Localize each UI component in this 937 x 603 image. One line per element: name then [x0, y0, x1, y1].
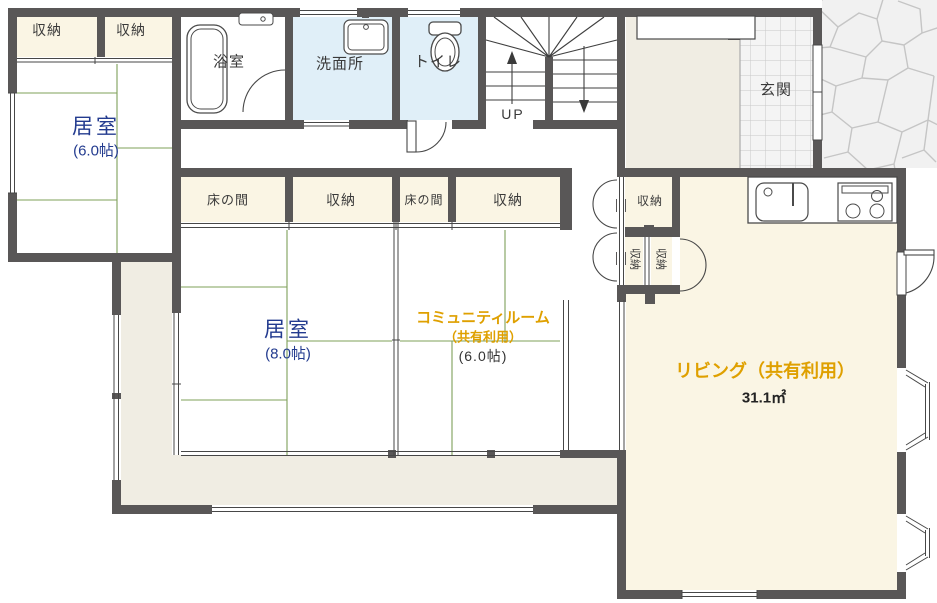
kitchen-counter-icon [748, 177, 897, 223]
label-storage-e: 収納 [637, 195, 663, 207]
label-storage-c: 収納 [326, 193, 356, 207]
label-room8-name: 居室 [264, 320, 312, 341]
bath-basin-icon [239, 13, 273, 25]
label-community-name: コミュニティルーム [416, 311, 550, 326]
label-living-name: リビング（共有利用） [675, 362, 855, 380]
stove-icon [838, 183, 892, 221]
label-tokonoma-a: 床の間 [207, 194, 249, 207]
label-storage-f: 収納 [629, 248, 640, 270]
floor-plan: 収納 収納 居室 (6.0帖) 浴室 洗面所 トイレ UP 玄関 床の間 収納 … [0, 0, 937, 603]
label-storage-d: 収納 [493, 193, 523, 207]
label-stairs-up: UP [501, 107, 524, 121]
label-room6-size: (6.0帖) [73, 144, 119, 159]
label-toilet: トイレ [414, 55, 462, 70]
label-room6-name: 居室 [72, 117, 120, 138]
kitchen-sink-icon [756, 183, 808, 221]
label-storage-g: 収納 [655, 248, 666, 270]
label-community-shared: （共有利用） [444, 331, 522, 344]
room-fills [17, 0, 937, 590]
label-tokonoma-b: 床の間 [404, 194, 443, 206]
washstand-icon [344, 20, 388, 54]
label-genkan: 玄関 [760, 83, 792, 98]
label-living-area: 31.1㎡ [742, 391, 786, 406]
shoe-cabinet-icon [637, 16, 755, 39]
label-storage-a: 収納 [32, 23, 62, 37]
label-washroom: 洗面所 [316, 57, 364, 72]
label-room8-size: (8.0帖) [265, 347, 311, 362]
floor-plan-drawing [0, 0, 937, 603]
label-storage-b: 収納 [116, 23, 146, 37]
label-bathroom: 浴室 [213, 55, 245, 70]
label-community-size: (6.0帖) [459, 349, 508, 363]
